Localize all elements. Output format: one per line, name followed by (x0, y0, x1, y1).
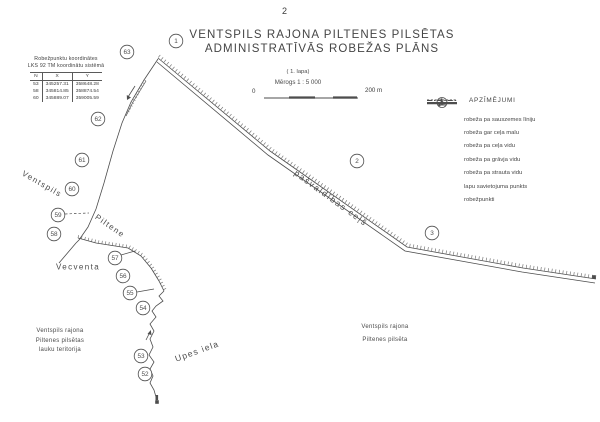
boundary-point-number: 63 (123, 49, 131, 56)
legend-symbol-dash-dot-line-icon (427, 141, 457, 152)
boundary-point-number: 1 (174, 38, 178, 45)
boundary-stream-line (149, 291, 164, 401)
boundary-point-number: 2 (355, 158, 359, 165)
area-note-line: Ventspils rajona (361, 321, 408, 334)
boundary-point-54: 54 (136, 301, 150, 315)
boundary-point-number: 53 (137, 353, 145, 360)
boundary-point-1: 1 (169, 34, 183, 48)
legend-item-label: robeža gar ceļa malu (464, 130, 519, 136)
legend-item-label: robeža pa ceļa vidu (464, 143, 515, 149)
legend-symbol-numbered-circle-icon: 1 (427, 195, 457, 206)
boundary-point-52: 52 (138, 367, 152, 381)
map-canvas: 123636261605958575655545352 (0, 0, 600, 422)
boundary-point-58: 58 (47, 227, 61, 241)
legend-item: 1robežpunkti (427, 193, 587, 206)
boundary-point-number: 55 (126, 290, 134, 297)
legend-item-label: robežpunkti (464, 197, 494, 203)
map-label-vecventa: Vecventa (56, 263, 100, 272)
area-note-line: Ventspils rajona (36, 327, 84, 337)
scale-bar-segment (289, 96, 315, 98)
boundary-west-spur (59, 243, 76, 263)
legend-symbol-dash-tick-line-icon (427, 154, 457, 165)
connector-point59 (65, 213, 89, 214)
legend-item-label: robeža pa grāvja vidu (464, 157, 520, 163)
boundary-point-60: 60 (65, 182, 79, 196)
map-sheet: 2 VENTSPILS RAJONA PILTENES PILSĒTAS ADM… (0, 0, 600, 422)
legend-item: robeža pa sauszemes līniju (427, 113, 587, 126)
boundary-point-53: 53 (134, 349, 148, 363)
boundary-point-number: 60 (68, 186, 76, 193)
legend-symbol-dash-arrow-line-icon (427, 168, 457, 179)
boundary-point-number: 59 (54, 212, 62, 219)
boundary-point-56: 56 (116, 269, 130, 283)
area-note: Ventspils rajonaPiltenes pilsēta (361, 321, 408, 347)
legend-item-label: robeža pa strauta vidu (464, 170, 522, 176)
stream-end-mark (156, 395, 159, 400)
scale-bar (264, 96, 358, 98)
legend-item: robeža pa strauta vidu (427, 167, 587, 180)
boundary-point-number: 56 (119, 273, 127, 280)
legend-item: robeža pa ceļa vidu (427, 140, 587, 153)
boundary-point-number: 52 (141, 371, 149, 378)
area-note-line: lauku teritorija (36, 346, 84, 356)
legend-item: robeža gar ceļa malu (427, 126, 587, 139)
legend-title: APZĪMĒJUMI (469, 97, 587, 104)
boundary-point-63: 63 (120, 45, 134, 59)
boundary-point-3: 3 (425, 226, 439, 240)
legend-item: lapu savietojuma punkts (427, 180, 587, 193)
boundary-point-61: 61 (75, 153, 89, 167)
connector-point57 (121, 251, 135, 255)
legend-item-label: robeža pa sauszemes līniju (464, 117, 535, 123)
sheet-join-point (155, 400, 159, 404)
svg-text:1: 1 (440, 100, 444, 106)
boundary-point-2: 2 (350, 154, 364, 168)
legend-symbol-dashed-over-solid-icon (427, 128, 457, 139)
sheet-join-point (592, 275, 596, 279)
legend: APZĪMĒJUMI robeža pa sauszemes līniju ro… (427, 97, 587, 207)
scale-bar-segment (333, 96, 357, 98)
legend-item: robeža pa grāvja vidu (427, 153, 587, 166)
boundary-point-number: 58 (50, 231, 58, 238)
boundary-point-59: 59 (51, 208, 65, 222)
boundary-point-number: 3 (430, 230, 434, 237)
boundary-point-number: 62 (94, 116, 102, 123)
stream-flow-arrow-head (148, 330, 152, 335)
connector-point55 (137, 289, 154, 292)
boundary-point-55: 55 (123, 286, 137, 300)
boundary-point-number: 54 (139, 305, 147, 312)
boundary-point-number: 61 (78, 157, 86, 164)
boundary-point-number: 57 (111, 255, 119, 262)
legend-symbol-solid-line-icon (427, 114, 457, 125)
legend-symbol-dot-icon (427, 181, 457, 192)
boundary-west-line (76, 59, 158, 243)
area-note-line: Piltenes pilsētas (36, 337, 84, 347)
area-note-line: Piltenes pilsēta (361, 334, 408, 347)
boundary-point-62: 62 (91, 112, 105, 126)
legend-item-label: lapu savietojuma punkts (464, 184, 527, 190)
flow-arrow-north (128, 86, 135, 97)
boundary-point-57: 57 (108, 251, 122, 265)
area-note: Ventspils rajonaPiltenes pilsētaslauku t… (36, 327, 84, 356)
